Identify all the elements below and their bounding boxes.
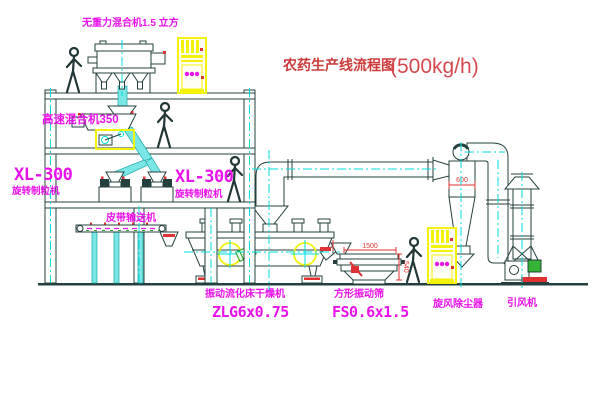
induced-draft-fan (501, 260, 549, 285)
sieve-height-dim: 540 (402, 261, 409, 273)
belt-conveyor (76, 223, 178, 284)
sieve-vibrator-motor (351, 266, 359, 273)
label-fluid-bed-model: ZLG6x0.75 (212, 303, 289, 321)
label-fan: 引风机 (507, 296, 537, 309)
label-granulator-left-model: XL-300 (14, 165, 73, 185)
label-sieve-name: 方形振动筛 (334, 287, 384, 300)
production-line-diagram: 600 (0, 0, 600, 403)
high-speed-mixer (72, 106, 136, 149)
label-sieve-model: FS0.6x1.5 (332, 303, 409, 321)
gravity-free-mixer (88, 41, 166, 93)
exhaust-duct (252, 157, 449, 233)
floor3-slab (45, 202, 255, 208)
label-granulator-right-model: XL-300 (175, 167, 234, 187)
label-belt-conveyor: 皮带输送机 (105, 211, 156, 224)
person-roof (67, 48, 81, 92)
riser-funnel (252, 206, 288, 224)
duct-taper (433, 160, 449, 180)
label-granulator-left-name: 旋转制粒机 (11, 185, 60, 197)
label-fluid-bed-name: 振动流化床干燥机 (205, 287, 285, 300)
vibrating-sieve: 1500 540 (331, 240, 409, 284)
feed-chutes (106, 86, 166, 183)
control-cabinet-right (428, 228, 456, 283)
floor2-slab (45, 148, 255, 154)
cyclone-diameter-dim: 600 (456, 177, 468, 184)
cad-flow-diagram-screenshot: 600 (0, 0, 600, 403)
roof-slab (45, 93, 255, 99)
label-gravity-mixer: 无重力混合机1.5 立方 (81, 16, 179, 29)
control-cabinet-top (178, 38, 206, 93)
label-cyclone: 旋风除尘器 (432, 297, 484, 310)
person-ground (407, 238, 421, 282)
label-high-speed-mixer: 高速混合机350 (42, 112, 119, 126)
diagram-capacity: (500kg/h) (390, 55, 479, 78)
mixer-motor (151, 53, 165, 64)
label-granulator-right-name: 旋转制粒机 (174, 188, 223, 200)
fan-motor (528, 260, 541, 272)
sieve-length-dim: 1500 (362, 243, 378, 250)
person-floor2 (158, 103, 172, 147)
diagram-title: 农药生产线流程图 (282, 57, 395, 73)
